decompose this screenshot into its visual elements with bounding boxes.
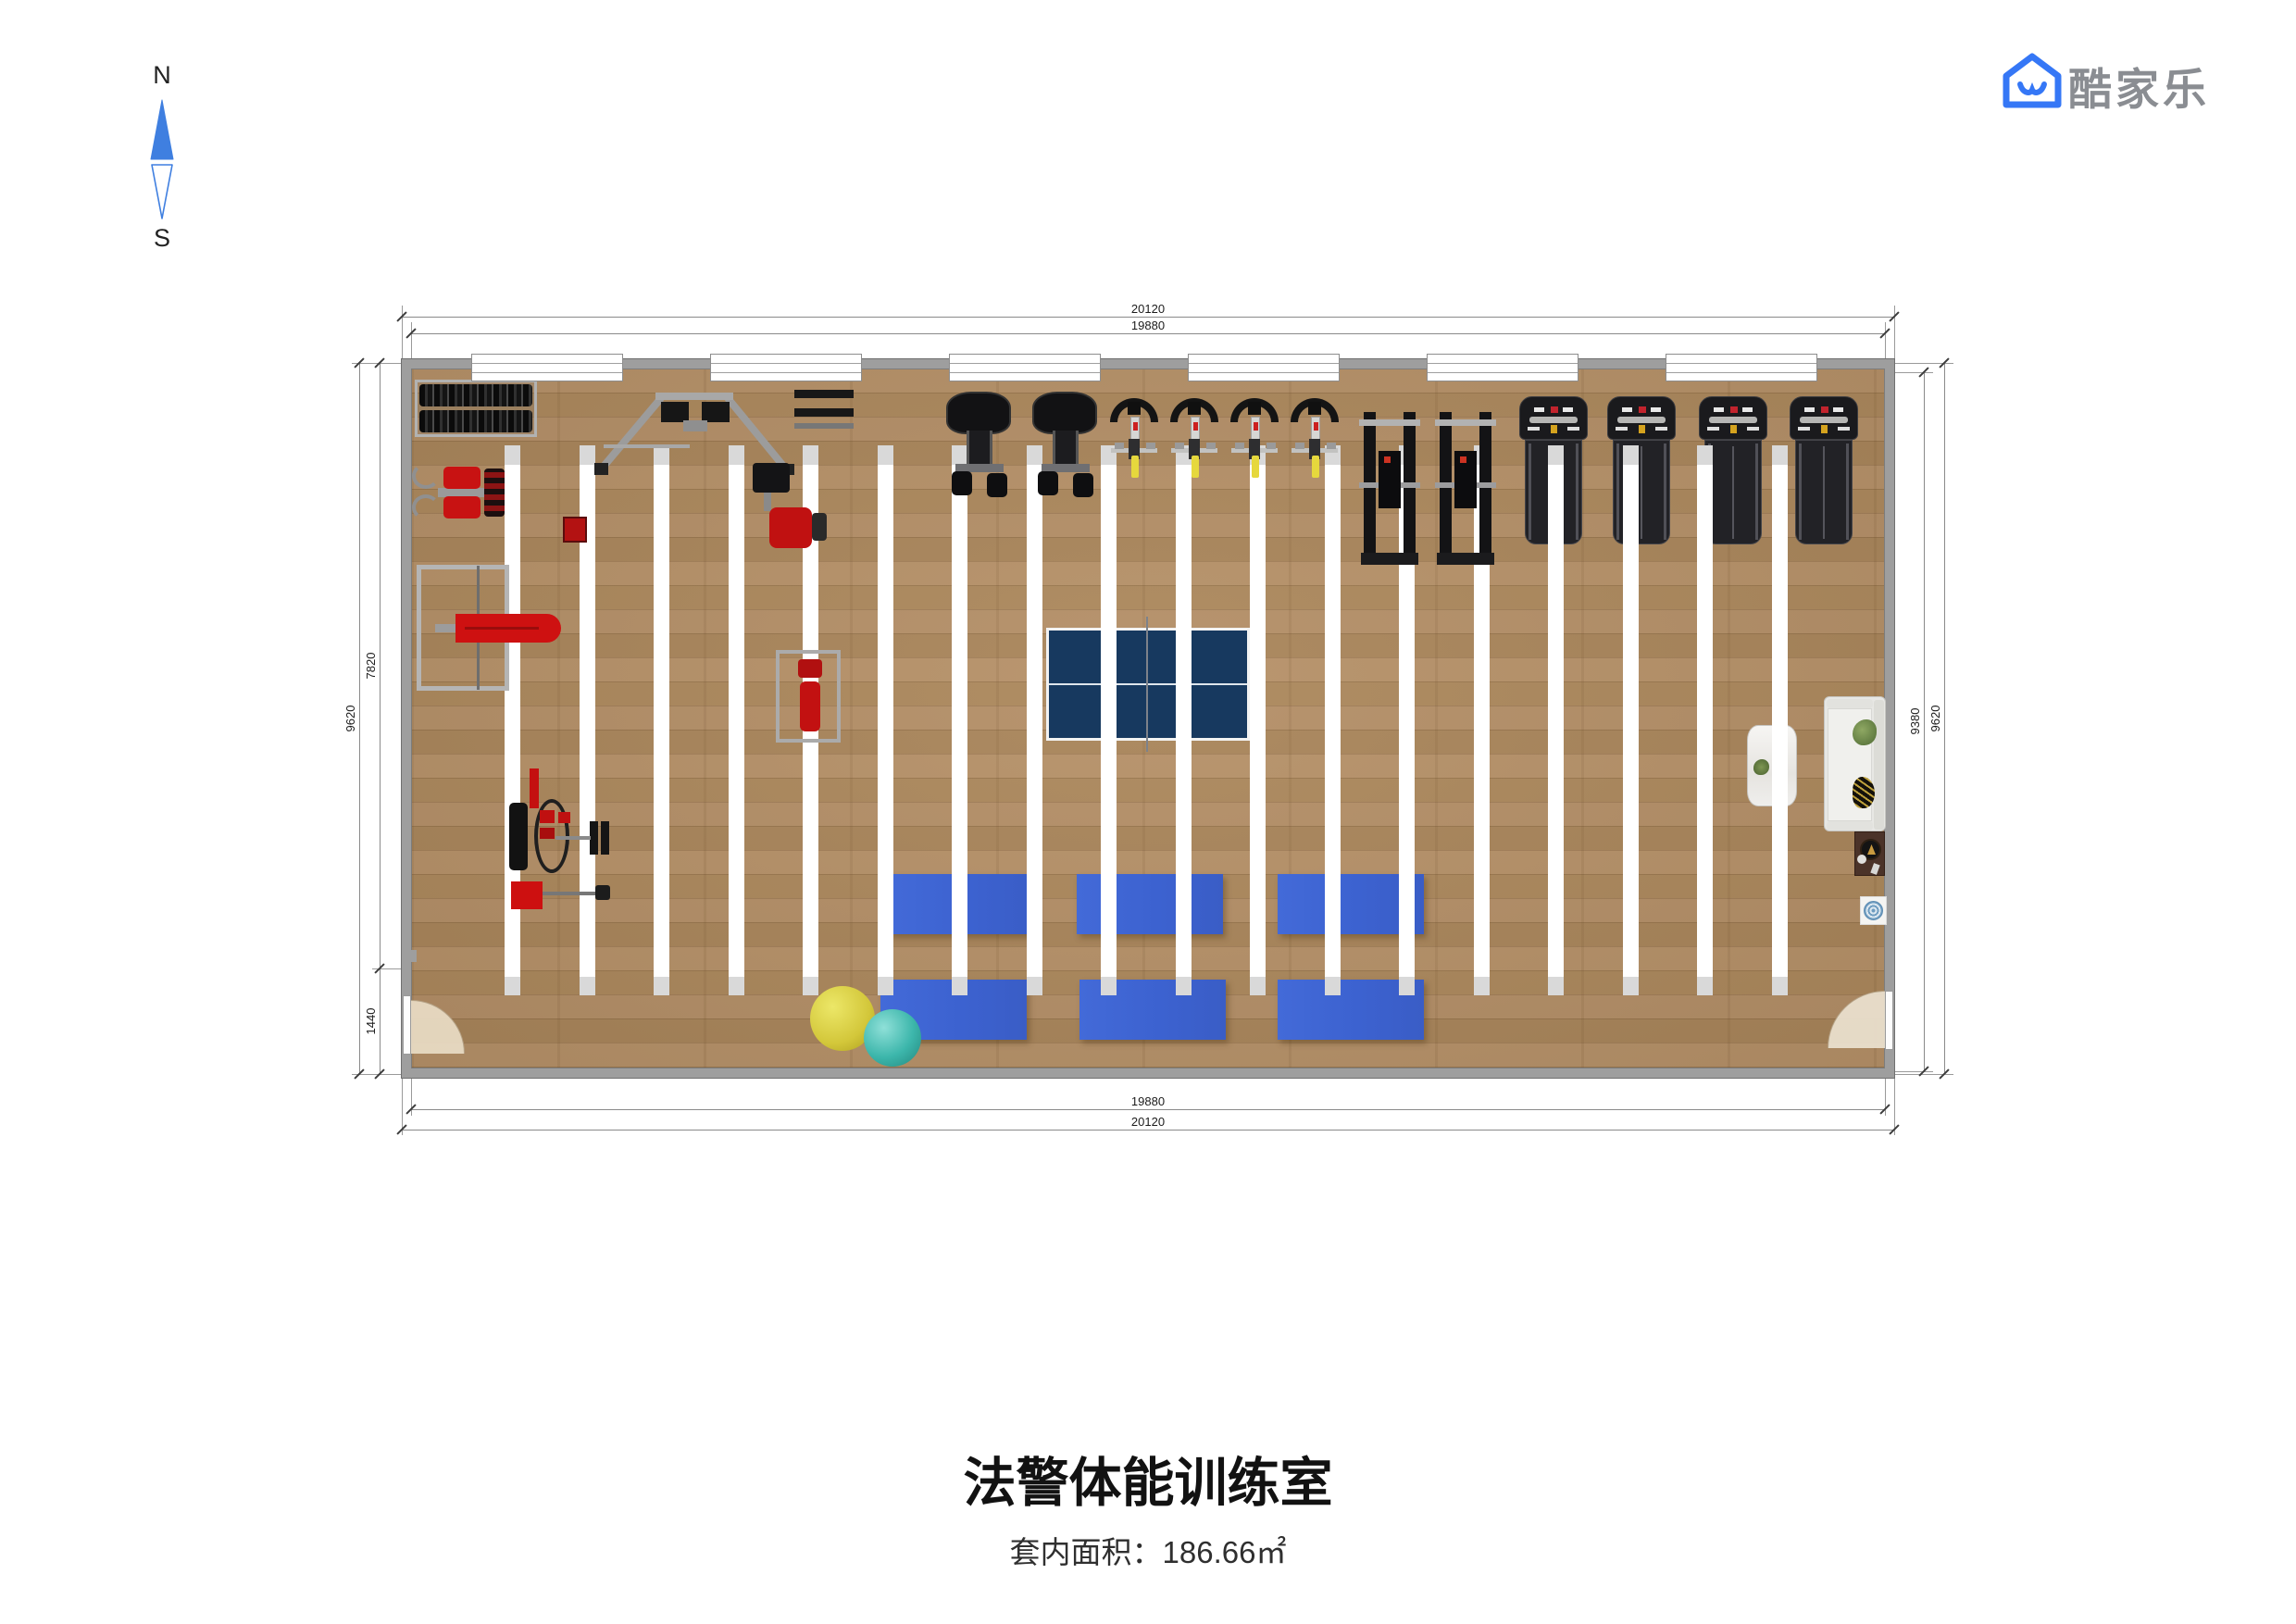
dumbbell-row	[419, 384, 532, 406]
multi-station-machine	[1435, 412, 1496, 569]
compass-needle-icon	[144, 96, 180, 222]
belt-line	[1823, 446, 1825, 539]
floor-lane-cap	[654, 977, 669, 995]
station-grip	[1460, 456, 1466, 463]
bike-pedal-right	[1206, 443, 1216, 449]
press-seat	[769, 507, 812, 548]
console-detail	[1639, 425, 1645, 433]
plan-area-label: 套内面积：186.66㎡	[0, 1528, 2296, 1572]
bench-press-station	[774, 648, 846, 746]
treadmill-belt	[1613, 440, 1670, 544]
station-pad	[800, 681, 820, 731]
console-grille	[1800, 417, 1848, 423]
floor-lane-cap	[505, 445, 520, 465]
pec-deck-arm	[412, 494, 440, 520]
t-bar-plate	[590, 821, 598, 855]
elliptical-machine	[944, 392, 1015, 497]
window-pane-line	[1189, 372, 1339, 373]
remote	[1870, 863, 1879, 875]
dim-label-bottom-outer: 20120	[1074, 1115, 1222, 1130]
rack-base	[794, 423, 854, 429]
dim-label-left-outer: 9620	[343, 691, 358, 746]
treadmill-belt	[1704, 440, 1762, 544]
extension-line	[1885, 322, 1886, 363]
window-pane-line	[1666, 363, 1816, 364]
door-left-leaf	[403, 995, 411, 1055]
pec-deck-pad	[443, 496, 480, 518]
floor-lane-cap	[803, 977, 818, 995]
bike-light	[1193, 422, 1198, 431]
floor-lane	[878, 445, 893, 995]
bench-seam	[465, 627, 539, 630]
leg-press-body	[509, 803, 528, 870]
console-detail	[1534, 407, 1544, 412]
dim-label-right-inner: 9380	[1908, 693, 1923, 749]
compass-north-label: N	[146, 61, 178, 89]
bike-pedal-right	[1146, 443, 1155, 449]
station-base	[1361, 553, 1418, 565]
station-topbar	[1359, 419, 1420, 426]
bike-pedal-left	[1235, 443, 1244, 449]
dimension-line	[359, 363, 360, 1074]
belt-rail	[1529, 443, 1531, 540]
sofa-armrest	[1827, 821, 1873, 831]
floor-lane	[729, 445, 744, 995]
dumbbell-rack	[415, 380, 537, 437]
floor-lane-cap	[1399, 977, 1415, 995]
dimension-line	[1924, 372, 1925, 1071]
console-detail	[1528, 427, 1540, 431]
sofa	[1824, 696, 1886, 831]
console-detail	[1747, 427, 1759, 431]
table-tennis-table	[1046, 628, 1250, 741]
table-center-line	[1049, 683, 1247, 685]
window	[949, 354, 1101, 381]
bike-pedal-left	[1295, 443, 1304, 449]
bike-pedal-right	[1327, 443, 1336, 449]
floor-lane-cap	[505, 977, 520, 995]
shoulder-press-machine	[745, 461, 834, 548]
window-pane-line	[711, 363, 861, 364]
leg-press-pad	[558, 812, 570, 823]
bike-pedal-left	[1115, 443, 1124, 449]
belt-rail	[1576, 443, 1578, 540]
t-bar-plate	[601, 821, 609, 855]
elliptical-top	[946, 392, 1011, 434]
floor-lane-cap	[878, 445, 893, 465]
belt-line	[1641, 446, 1642, 539]
rack-bar	[794, 408, 854, 417]
floor-lane	[1697, 445, 1713, 995]
treadmill-console	[1519, 396, 1588, 440]
cup	[1857, 855, 1866, 864]
console-detail	[1616, 427, 1628, 431]
window-pane-line	[472, 372, 622, 373]
station-topbar	[1435, 419, 1496, 426]
table-tennis-net	[1146, 617, 1148, 752]
station-head-pad	[798, 659, 822, 678]
dim-label-bottom-inner: 19880	[1074, 1094, 1222, 1109]
dimension-line	[411, 333, 1885, 334]
press-frame	[753, 463, 790, 493]
floor-lane	[1623, 445, 1639, 995]
belt-rail	[1616, 443, 1619, 540]
floor-lane-cap	[1250, 977, 1266, 995]
belt-rail	[1755, 443, 1758, 540]
treadmill-console	[1607, 396, 1676, 440]
console-detail	[1833, 407, 1843, 412]
multi-station-machine	[1359, 412, 1420, 569]
console-detail	[1821, 406, 1828, 413]
station-base	[1437, 553, 1494, 565]
console-detail	[1730, 406, 1738, 413]
sofa-armrest	[1827, 699, 1873, 708]
belt-rail	[1846, 443, 1849, 540]
floor-lane-cap	[1101, 977, 1117, 995]
sofa-cushion	[1853, 777, 1875, 808]
console-detail	[1821, 425, 1828, 433]
barbell-bench	[511, 881, 618, 917]
floor-lane	[1101, 445, 1117, 995]
potted-plant	[1753, 759, 1769, 775]
window-pane-line	[950, 372, 1100, 373]
window-pane-line	[711, 372, 861, 373]
press-post	[764, 493, 771, 511]
window-pane-line	[1666, 372, 1816, 373]
console-detail	[1567, 427, 1579, 431]
window	[710, 354, 862, 381]
console-detail	[1563, 407, 1573, 412]
pec-deck-weight-stack	[484, 468, 505, 517]
sofa-back	[1874, 700, 1884, 830]
console-detail	[1551, 425, 1557, 433]
dimension-line	[402, 1130, 1894, 1131]
floorplan	[402, 359, 1894, 1078]
bike-seat-post	[1192, 456, 1199, 478]
dimension-line	[411, 1109, 1885, 1110]
window	[471, 354, 623, 381]
window	[1188, 354, 1340, 381]
bike-head	[1248, 402, 1261, 415]
kujiale-logo-text: 酷家乐	[2068, 54, 2210, 118]
extension-line	[411, 322, 412, 363]
red-plate-stand	[563, 517, 587, 543]
t-bar-shaft	[555, 836, 591, 840]
floor-lane-cap	[878, 977, 893, 995]
barbell-clamp	[595, 885, 610, 900]
floorplan-export-page: N S 酷家乐 20120 19880 19880 20120 9620 782…	[0, 0, 2296, 1624]
door-right-leaf	[1885, 991, 1893, 1050]
leg-press-pad	[540, 828, 555, 839]
dimension-line	[380, 968, 381, 1074]
weight-bench	[435, 613, 561, 644]
belt-rail	[1664, 443, 1666, 540]
console-detail	[1804, 407, 1815, 412]
window	[1427, 354, 1578, 381]
pec-deck-machine	[412, 463, 506, 522]
floor-lane	[1325, 445, 1341, 995]
floor-lane	[952, 445, 967, 995]
elliptical-column	[967, 431, 992, 468]
console-detail	[1730, 425, 1737, 433]
compass-south-label: S	[146, 224, 178, 252]
dim-label-top-outer: 20120	[1074, 302, 1222, 317]
console-detail	[1714, 407, 1724, 412]
leg-press-post	[530, 768, 539, 808]
elliptical-foot	[952, 471, 972, 495]
floor-lane-cap	[952, 977, 967, 995]
spin-bike	[1229, 396, 1281, 500]
bike-head	[1188, 402, 1201, 415]
treadmill	[1790, 396, 1858, 546]
bike-head	[1308, 402, 1321, 415]
floor-lane-cap	[1697, 445, 1713, 465]
bike-head	[1128, 402, 1141, 415]
exercise-mat	[1077, 874, 1223, 934]
elliptical-machine	[1030, 392, 1101, 497]
floor-lane-cap	[1623, 977, 1639, 995]
floor-lane	[1772, 445, 1788, 995]
floor-lane-cap	[729, 977, 744, 995]
bike-light	[1254, 422, 1258, 431]
elliptical-top	[1032, 392, 1097, 434]
window-pane-line	[1428, 372, 1578, 373]
bike-pedal-left	[1175, 443, 1184, 449]
treadmill-console	[1790, 396, 1858, 440]
console-detail	[1742, 407, 1753, 412]
console-detail	[1798, 427, 1810, 431]
console-detail	[1838, 427, 1850, 431]
console-grille	[1529, 417, 1578, 423]
console-detail	[1651, 407, 1661, 412]
console-detail	[1639, 406, 1646, 413]
floor-lane-cap	[1027, 977, 1042, 995]
dimension-line	[1944, 363, 1945, 1074]
floor-lane	[1250, 445, 1266, 995]
floor-lane	[1176, 445, 1192, 995]
bike-light	[1314, 422, 1318, 431]
treadmill	[1607, 396, 1676, 546]
bike-pedal-right	[1267, 443, 1276, 449]
elliptical-foot	[987, 473, 1007, 497]
console-grille	[1709, 417, 1757, 423]
station-grip	[1384, 456, 1391, 463]
rack-bar	[794, 390, 854, 398]
elliptical-foot	[1073, 473, 1093, 497]
bike-seat-post	[1312, 456, 1319, 478]
bench-pad-red	[511, 881, 543, 909]
window	[1666, 354, 1817, 381]
side-table	[1854, 831, 1885, 876]
window-pane-line	[472, 363, 622, 364]
window-pane-line	[950, 363, 1100, 364]
console-grille	[1617, 417, 1666, 423]
console-detail	[1622, 407, 1632, 412]
floor-lane-cap	[1772, 445, 1788, 465]
dim-label-right-outer: 9620	[1928, 691, 1943, 746]
belt-rail	[1799, 443, 1802, 540]
elliptical-foot	[1038, 471, 1058, 495]
bike-seat-post	[1131, 456, 1139, 478]
console-detail	[1707, 427, 1719, 431]
floor-lane	[1548, 445, 1564, 995]
leg-press-pad	[540, 810, 555, 823]
floor-lane-cap	[1772, 977, 1788, 995]
bike-seat-post	[1252, 456, 1259, 478]
leg-press-machine	[505, 768, 618, 876]
floor-lane-cap	[1176, 977, 1192, 995]
dumbbell-row	[419, 410, 532, 432]
barbell-rack	[794, 384, 854, 432]
treadmill-belt	[1795, 440, 1853, 544]
belt-line	[1732, 446, 1734, 539]
exercise-ball-teal	[864, 1009, 921, 1067]
window-pane-line	[1189, 363, 1339, 364]
console-detail	[1655, 427, 1667, 431]
kujiale-logo-icon	[2002, 52, 2063, 111]
bike-light	[1133, 422, 1138, 431]
dim-label-left-lower: 1440	[364, 993, 379, 1049]
floor-lane-cap	[1548, 445, 1564, 465]
dim-label-top-inner: 19880	[1074, 319, 1222, 333]
treadmill-console	[1699, 396, 1767, 440]
dimension-line	[402, 317, 1894, 318]
spin-bike	[1290, 396, 1341, 500]
dimension-line	[380, 363, 381, 968]
floor-lane-cap	[1548, 977, 1564, 995]
sofa-plant-decor	[1853, 719, 1877, 745]
floor-lane-cap	[1623, 445, 1639, 465]
floor-lane-cap	[580, 977, 595, 995]
floor-lane	[1027, 445, 1042, 995]
pec-deck-pad	[443, 467, 480, 489]
bench-stem	[435, 624, 457, 632]
wall-pier	[402, 950, 417, 962]
floor-lane-cap	[1474, 977, 1490, 995]
spin-bike	[1109, 396, 1161, 500]
spin-bike	[1169, 396, 1221, 500]
floor-lane	[654, 445, 669, 995]
floor-pad	[1860, 896, 1887, 925]
floor-lane-cap	[1325, 977, 1341, 995]
press-pad	[812, 513, 827, 541]
plan-title: 法警体能训练室	[0, 1441, 2296, 1517]
rope-coil	[1864, 901, 1883, 920]
elliptical-column	[1053, 431, 1079, 468]
console-detail	[1551, 406, 1558, 413]
floor-lane-cap	[1697, 977, 1713, 995]
dim-label-left-upper: 7820	[364, 638, 379, 693]
pec-deck-arm	[412, 463, 440, 489]
window-pane-line	[1428, 363, 1578, 364]
